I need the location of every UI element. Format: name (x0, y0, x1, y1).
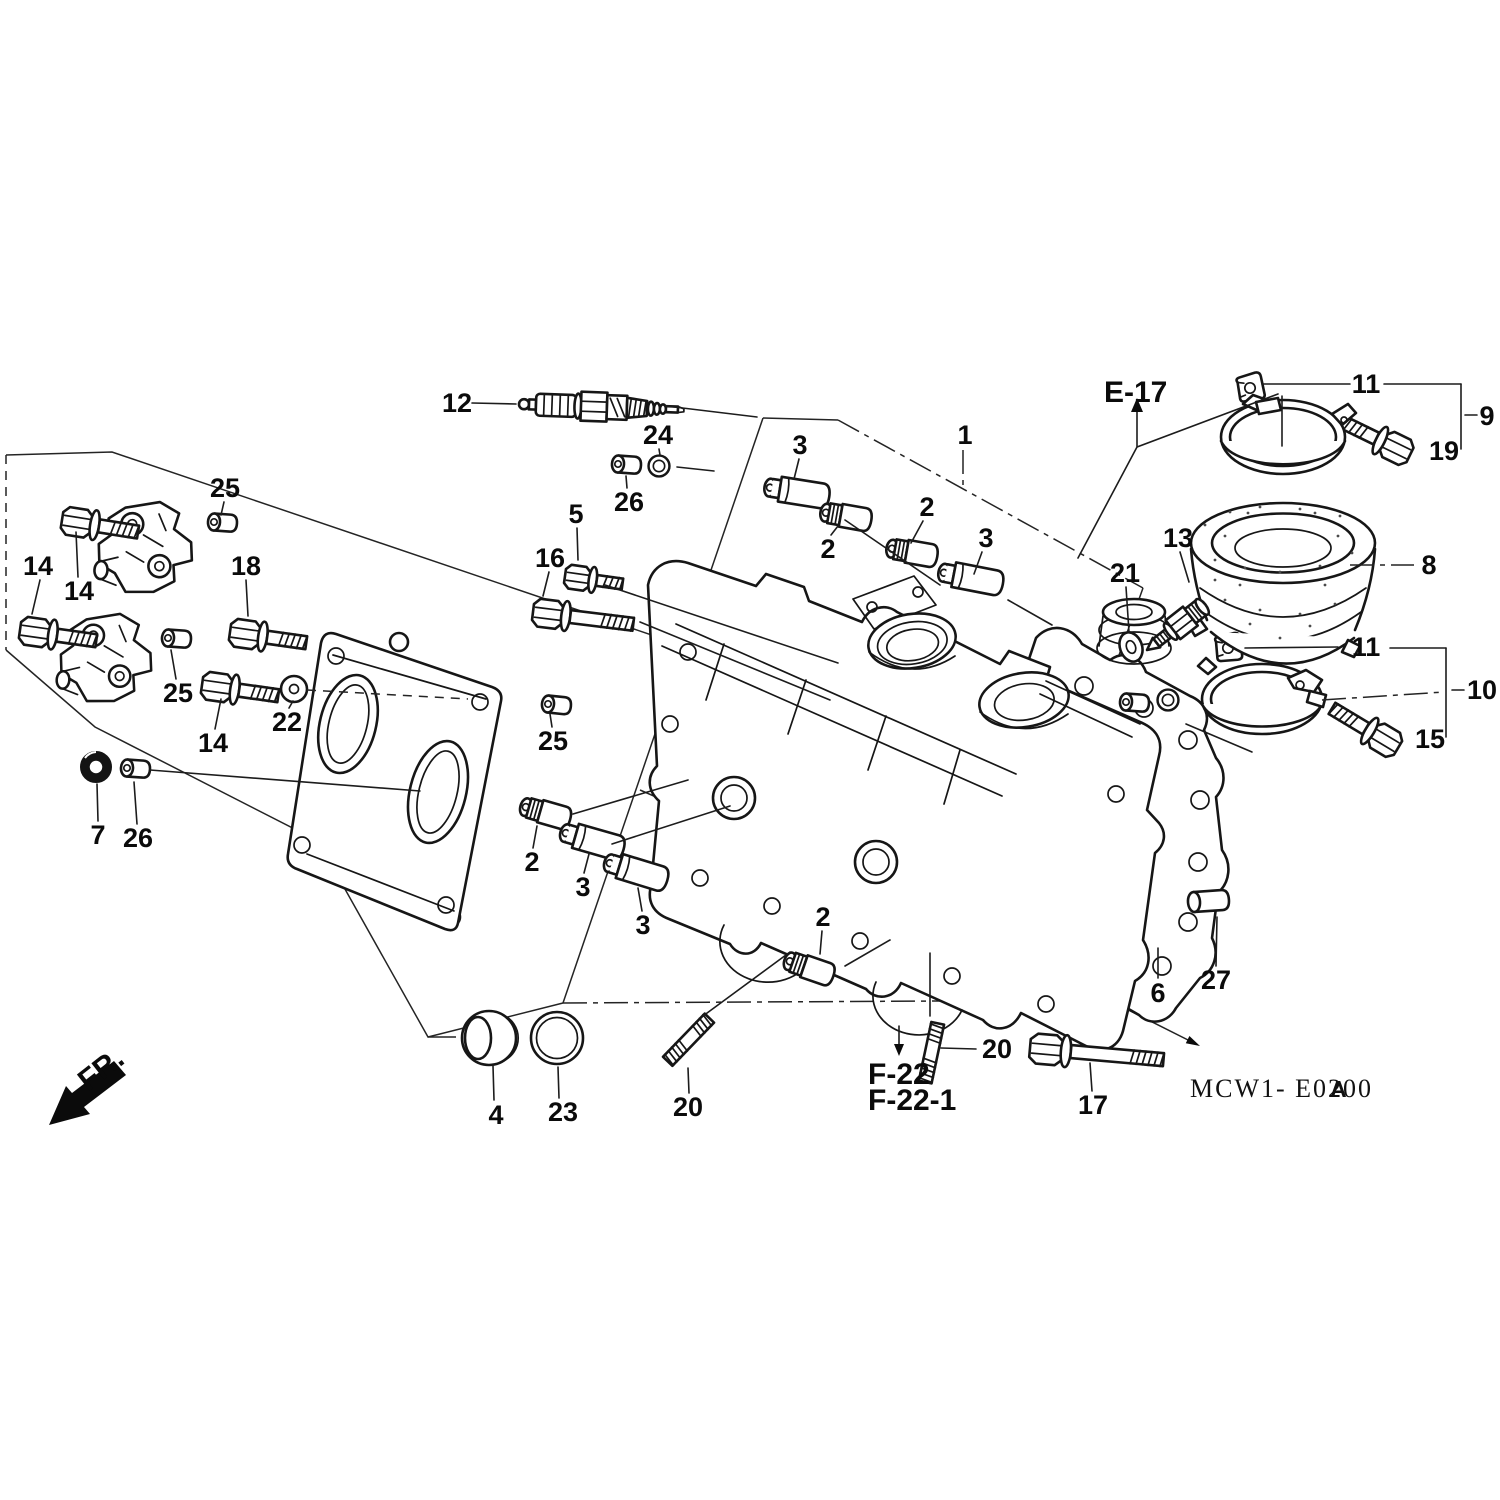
o-ring-24 (1158, 690, 1179, 711)
callout-2-23: 2 (815, 902, 830, 932)
clamp-band-10 (1198, 658, 1326, 734)
bushing-26 (611, 455, 641, 474)
exploded-parts-diagram: 1224263123251625141418251422257262332423… (0, 0, 1500, 1500)
cam-holder-lower (55, 610, 155, 706)
callout-27-30: 27 (1201, 965, 1231, 995)
washer-22 (281, 676, 307, 702)
callout-2-7: 2 (820, 534, 835, 564)
cam-holder-upper (93, 498, 196, 597)
flange-bolt-18 (228, 617, 308, 657)
callout-14-11: 14 (23, 551, 53, 581)
o-ring-24 (649, 456, 670, 477)
diagram-code-suffix: A (1330, 1076, 1347, 1102)
callout-19-35: 19 (1429, 436, 1459, 466)
cylinder-head (648, 561, 1171, 1050)
callout-3-6: 3 (978, 523, 993, 553)
callout-18-13: 18 (231, 551, 261, 581)
stud-20 (663, 1013, 715, 1066)
o-ring-23 (531, 1012, 583, 1064)
callout-7-18: 7 (90, 820, 105, 850)
callout-25-17: 25 (538, 726, 568, 756)
callout-2-20: 2 (524, 847, 539, 877)
section-ref-label: E-17 (1104, 376, 1167, 409)
callout-16-9: 16 (535, 543, 565, 573)
f22-arrow (894, 1026, 904, 1056)
flange-bolt-16 (531, 597, 635, 639)
dowel-pin (1187, 890, 1229, 913)
callout-4-24: 4 (488, 1100, 503, 1130)
callout-1-4: 1 (957, 420, 972, 450)
bushing-25 (207, 513, 237, 532)
callout-20-26: 20 (673, 1092, 703, 1122)
callout-11-36: 11 (1352, 369, 1381, 399)
seal-7 (81, 752, 112, 783)
callout-13-31: 13 (1163, 523, 1193, 553)
callout-26-2: 26 (614, 487, 644, 517)
parts-diagram-page: 1224263123251625141418251422257262332423… (0, 0, 1500, 1500)
bushing-26 (120, 759, 150, 778)
callout-12-0: 12 (442, 388, 472, 418)
cam-end-cover (288, 633, 502, 930)
callout-24-1: 24 (643, 420, 673, 450)
callout-23-25: 23 (548, 1097, 578, 1127)
callout-15-39: 15 (1415, 724, 1445, 754)
flange-bolt-14 (200, 670, 280, 710)
bushing-25 (541, 695, 572, 715)
callout-22-16: 22 (272, 707, 302, 737)
callout-3-21: 3 (575, 872, 590, 902)
valve-guide-exhaust (819, 500, 874, 532)
callout-10-38: 10 (1467, 675, 1497, 705)
clamp-band-9 (1221, 395, 1356, 474)
callout-25-14: 25 (163, 678, 193, 708)
callout-3-3: 3 (792, 430, 807, 460)
callout-25-10: 25 (210, 473, 240, 503)
callout-6-29: 6 (1150, 978, 1165, 1008)
collar-4 (462, 1011, 518, 1065)
bushing-25 (161, 629, 191, 648)
callout-8-33: 8 (1421, 550, 1436, 580)
callout-9-34: 9 (1479, 401, 1494, 431)
subsection-ref-label-2: F-22-1 (868, 1084, 956, 1117)
valve-guide-intake (936, 559, 1005, 596)
valve-guide-intake (763, 474, 832, 509)
callout-26-19: 26 (123, 823, 153, 853)
callout-14-12: 14 (64, 576, 94, 606)
bushing-26 (1119, 693, 1149, 712)
callout-17-28: 17 (1078, 1090, 1108, 1120)
callout-11-37: 11 (1352, 632, 1381, 662)
callout-2-5: 2 (919, 492, 934, 522)
callout-3-22: 3 (635, 910, 650, 940)
callout-14-15: 14 (198, 728, 228, 758)
callout-21-32: 21 (1110, 558, 1140, 588)
clamp-bolt-15 (1324, 695, 1405, 760)
flange-bolt-5 (563, 563, 624, 597)
callout-20-27: 20 (982, 1034, 1012, 1064)
callout-5-8: 5 (568, 499, 583, 529)
